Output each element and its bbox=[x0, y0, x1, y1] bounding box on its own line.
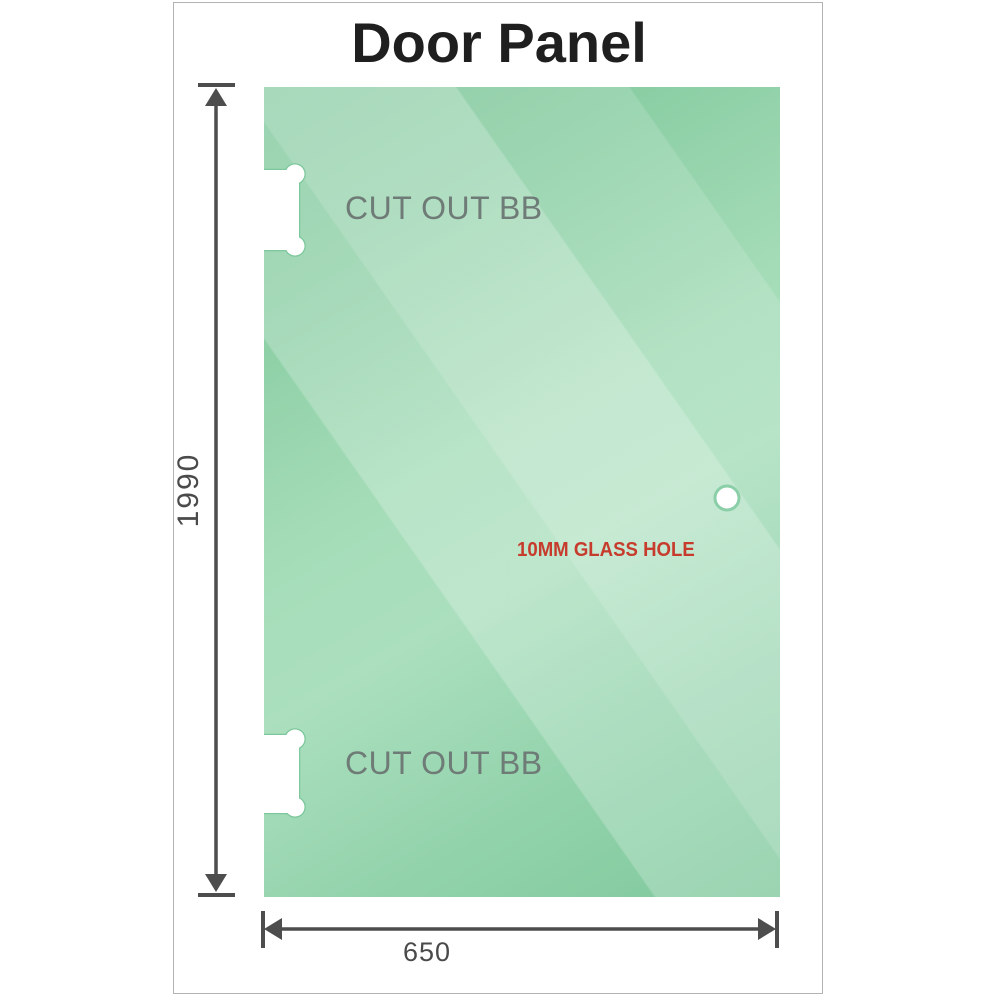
door-panel-diagram: Door Panel bbox=[0, 0, 1000, 1000]
width-dimension-label: 650 bbox=[377, 937, 477, 968]
glass-hole bbox=[715, 486, 739, 510]
top-cutout-label: CUT OUT BB bbox=[345, 190, 543, 227]
bottom-cutout-shape bbox=[250, 730, 305, 817]
width-dimension-arrow bbox=[263, 911, 777, 948]
top-cutout-shape bbox=[250, 165, 305, 256]
bottom-cutout-label: CUT OUT BB bbox=[345, 745, 543, 782]
glass-hole-label: 10MM GLASS HOLE bbox=[517, 539, 695, 562]
height-dimension-label: 1990 bbox=[174, 440, 204, 540]
diagram-overlay bbox=[0, 0, 1000, 1000]
